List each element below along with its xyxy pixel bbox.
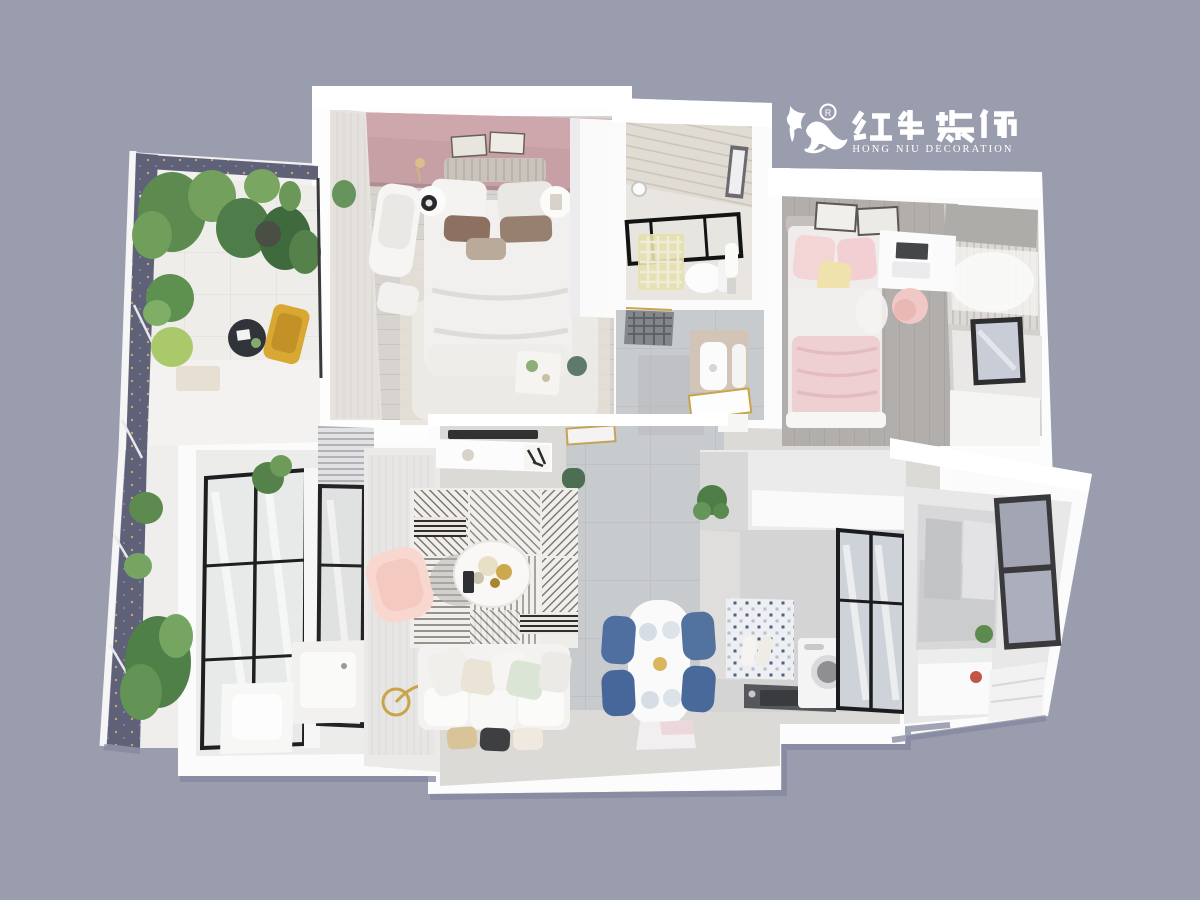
svg-text:R: R [825, 108, 832, 118]
svg-text:HONG NIU DECORATION: HONG NIU DECORATION [852, 144, 1013, 155]
